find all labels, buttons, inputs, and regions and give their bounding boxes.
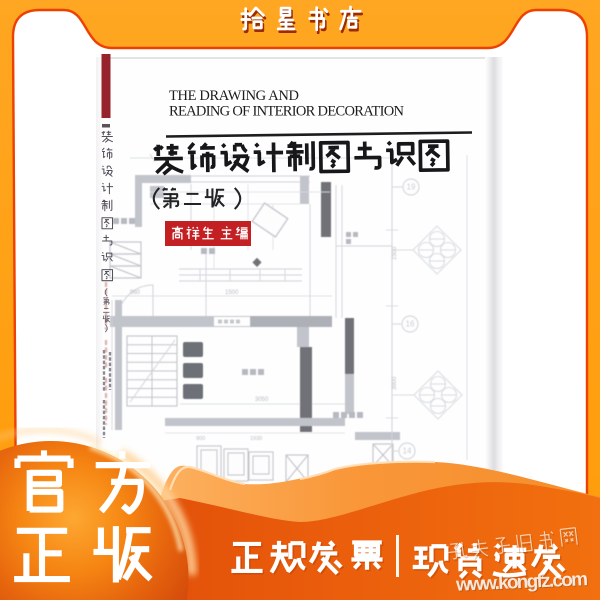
svg-text:3900: 3900 — [392, 376, 398, 390]
svg-text:THE DRAWING AND: THE DRAWING AND — [169, 88, 299, 104]
svg-text:READING OF INTERIOR DECORATION: READING OF INTERIOR DECORATION — [169, 104, 405, 120]
svg-text:1930: 1930 — [250, 436, 262, 442]
svg-text:3050: 3050 — [255, 397, 269, 403]
svg-text:16: 16 — [406, 320, 415, 329]
svg-text:1500: 1500 — [225, 290, 239, 296]
svg-text:900: 900 — [196, 436, 205, 442]
svg-text:14: 14 — [403, 447, 412, 456]
svg-text:19: 19 — [407, 183, 416, 192]
svg-text:1500: 1500 — [392, 246, 398, 260]
svg-text:960: 960 — [130, 290, 141, 296]
